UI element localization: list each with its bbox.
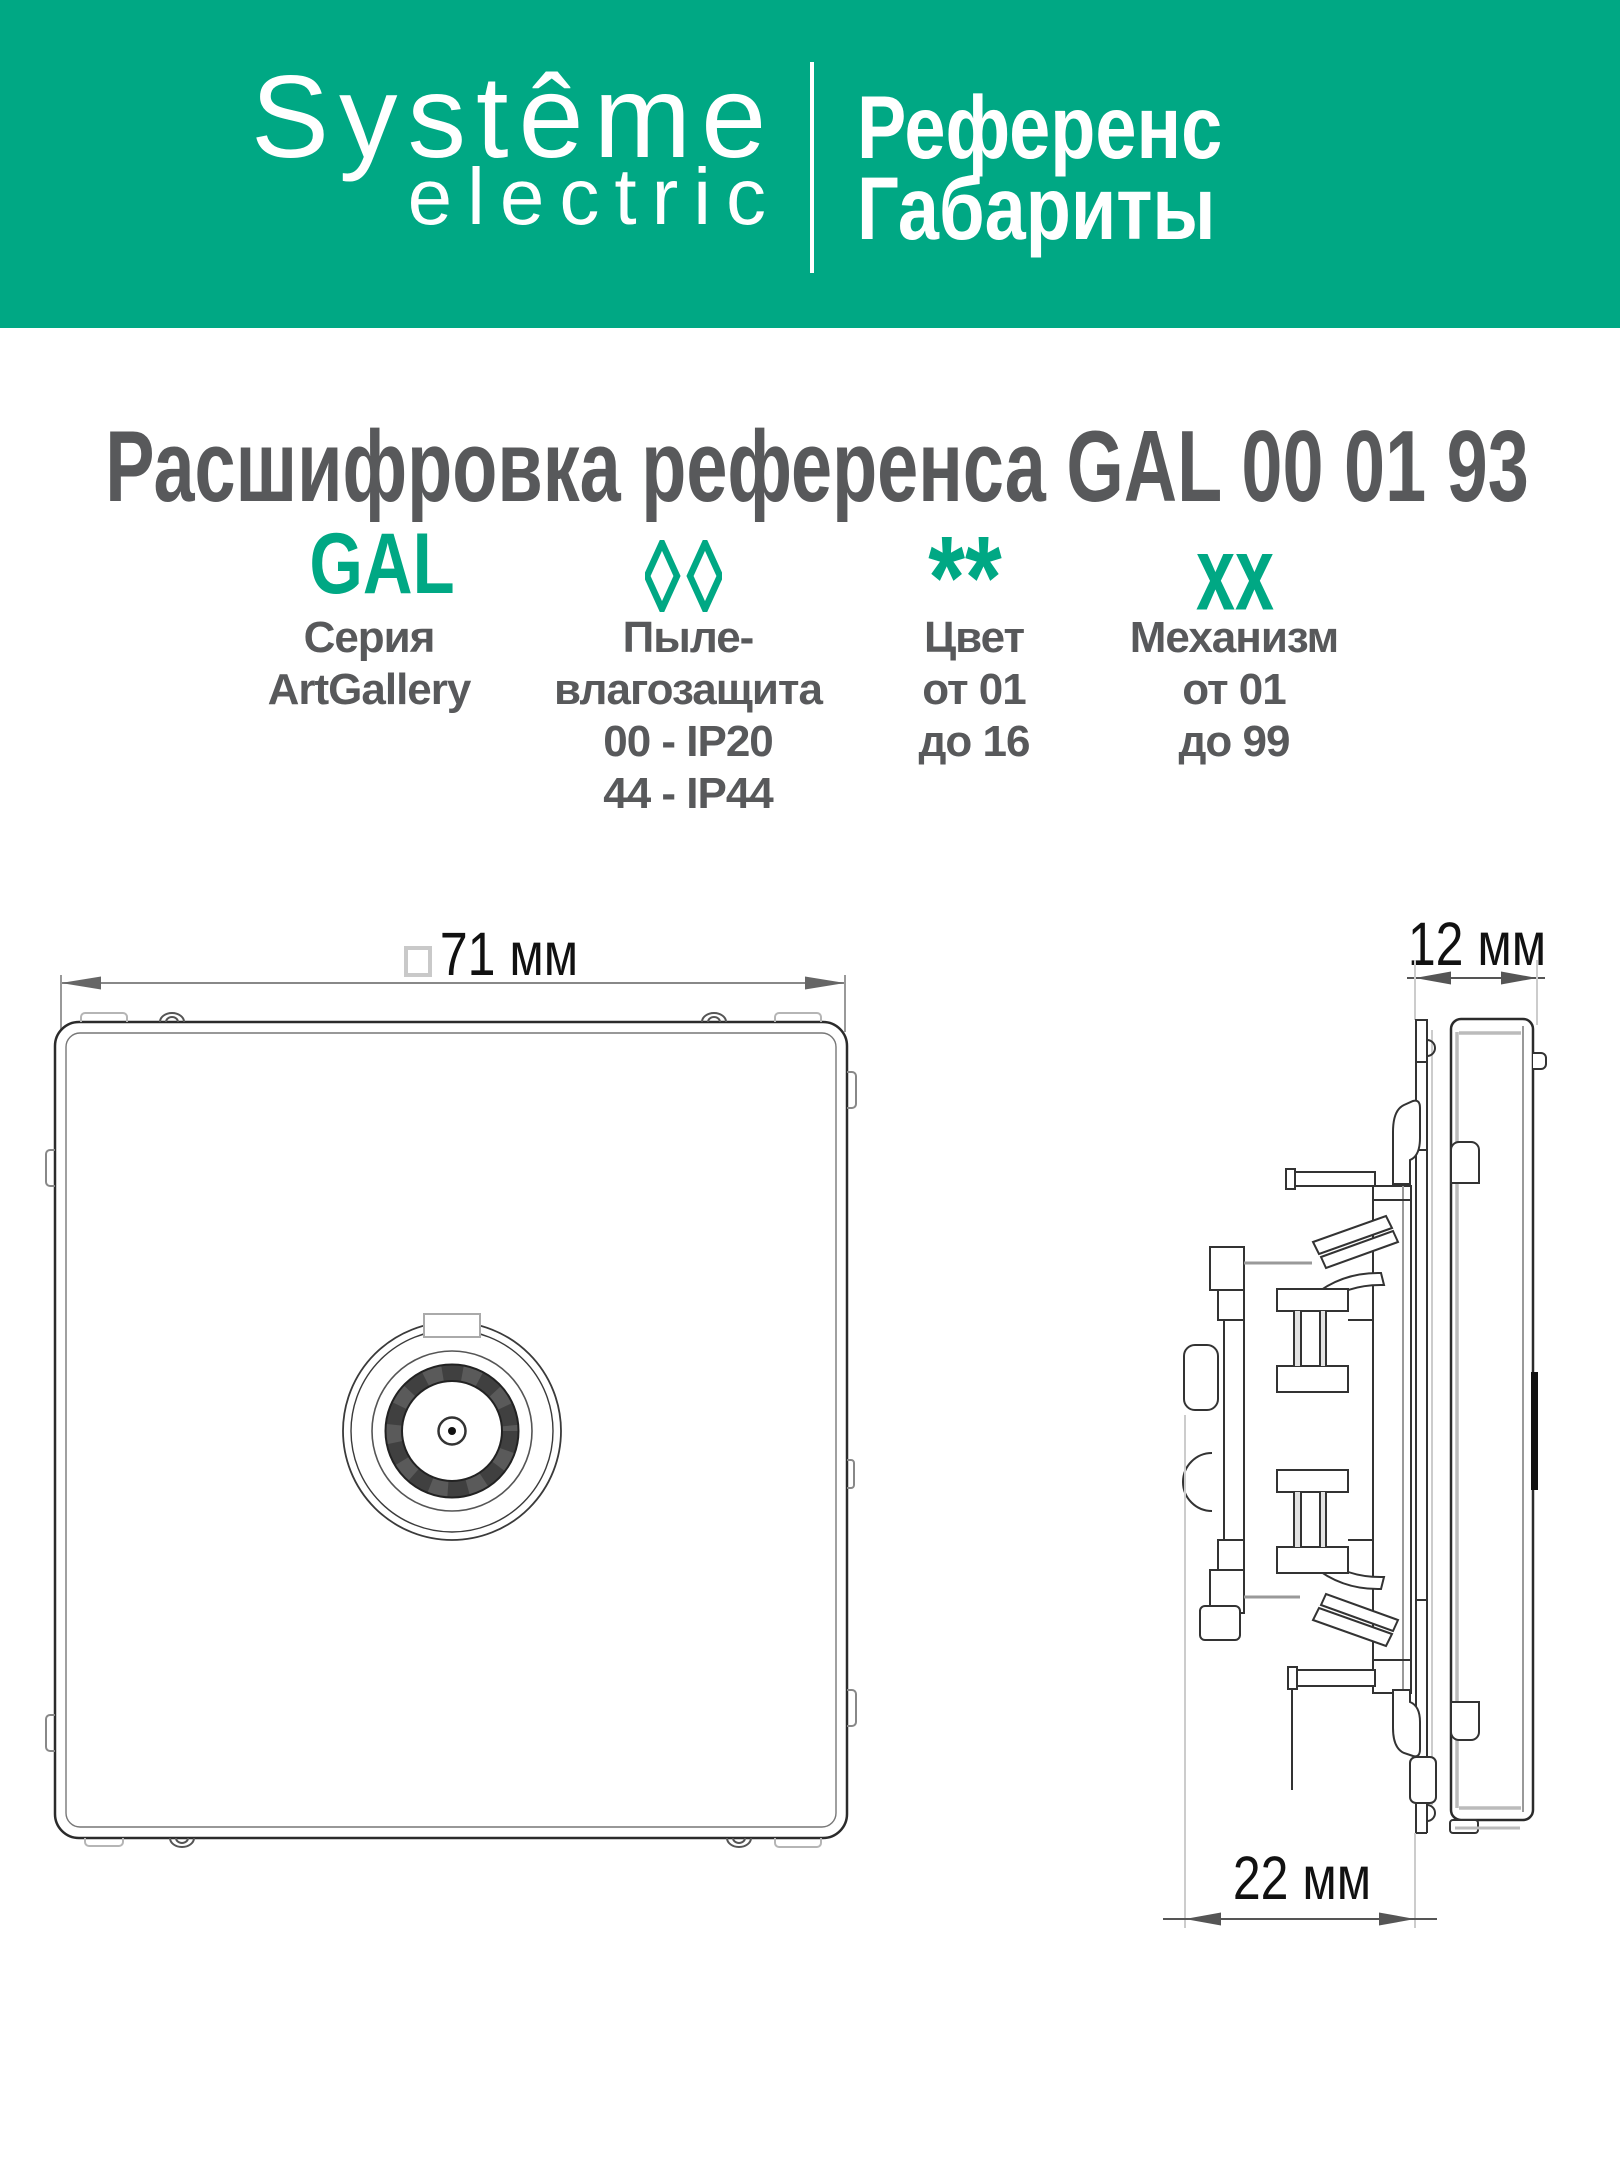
svg-text:71 мм: 71 мм <box>440 920 578 988</box>
svg-text:22 мм: 22 мм <box>1233 1844 1371 1912</box>
svg-text:12 мм: 12 мм <box>1408 910 1546 978</box>
